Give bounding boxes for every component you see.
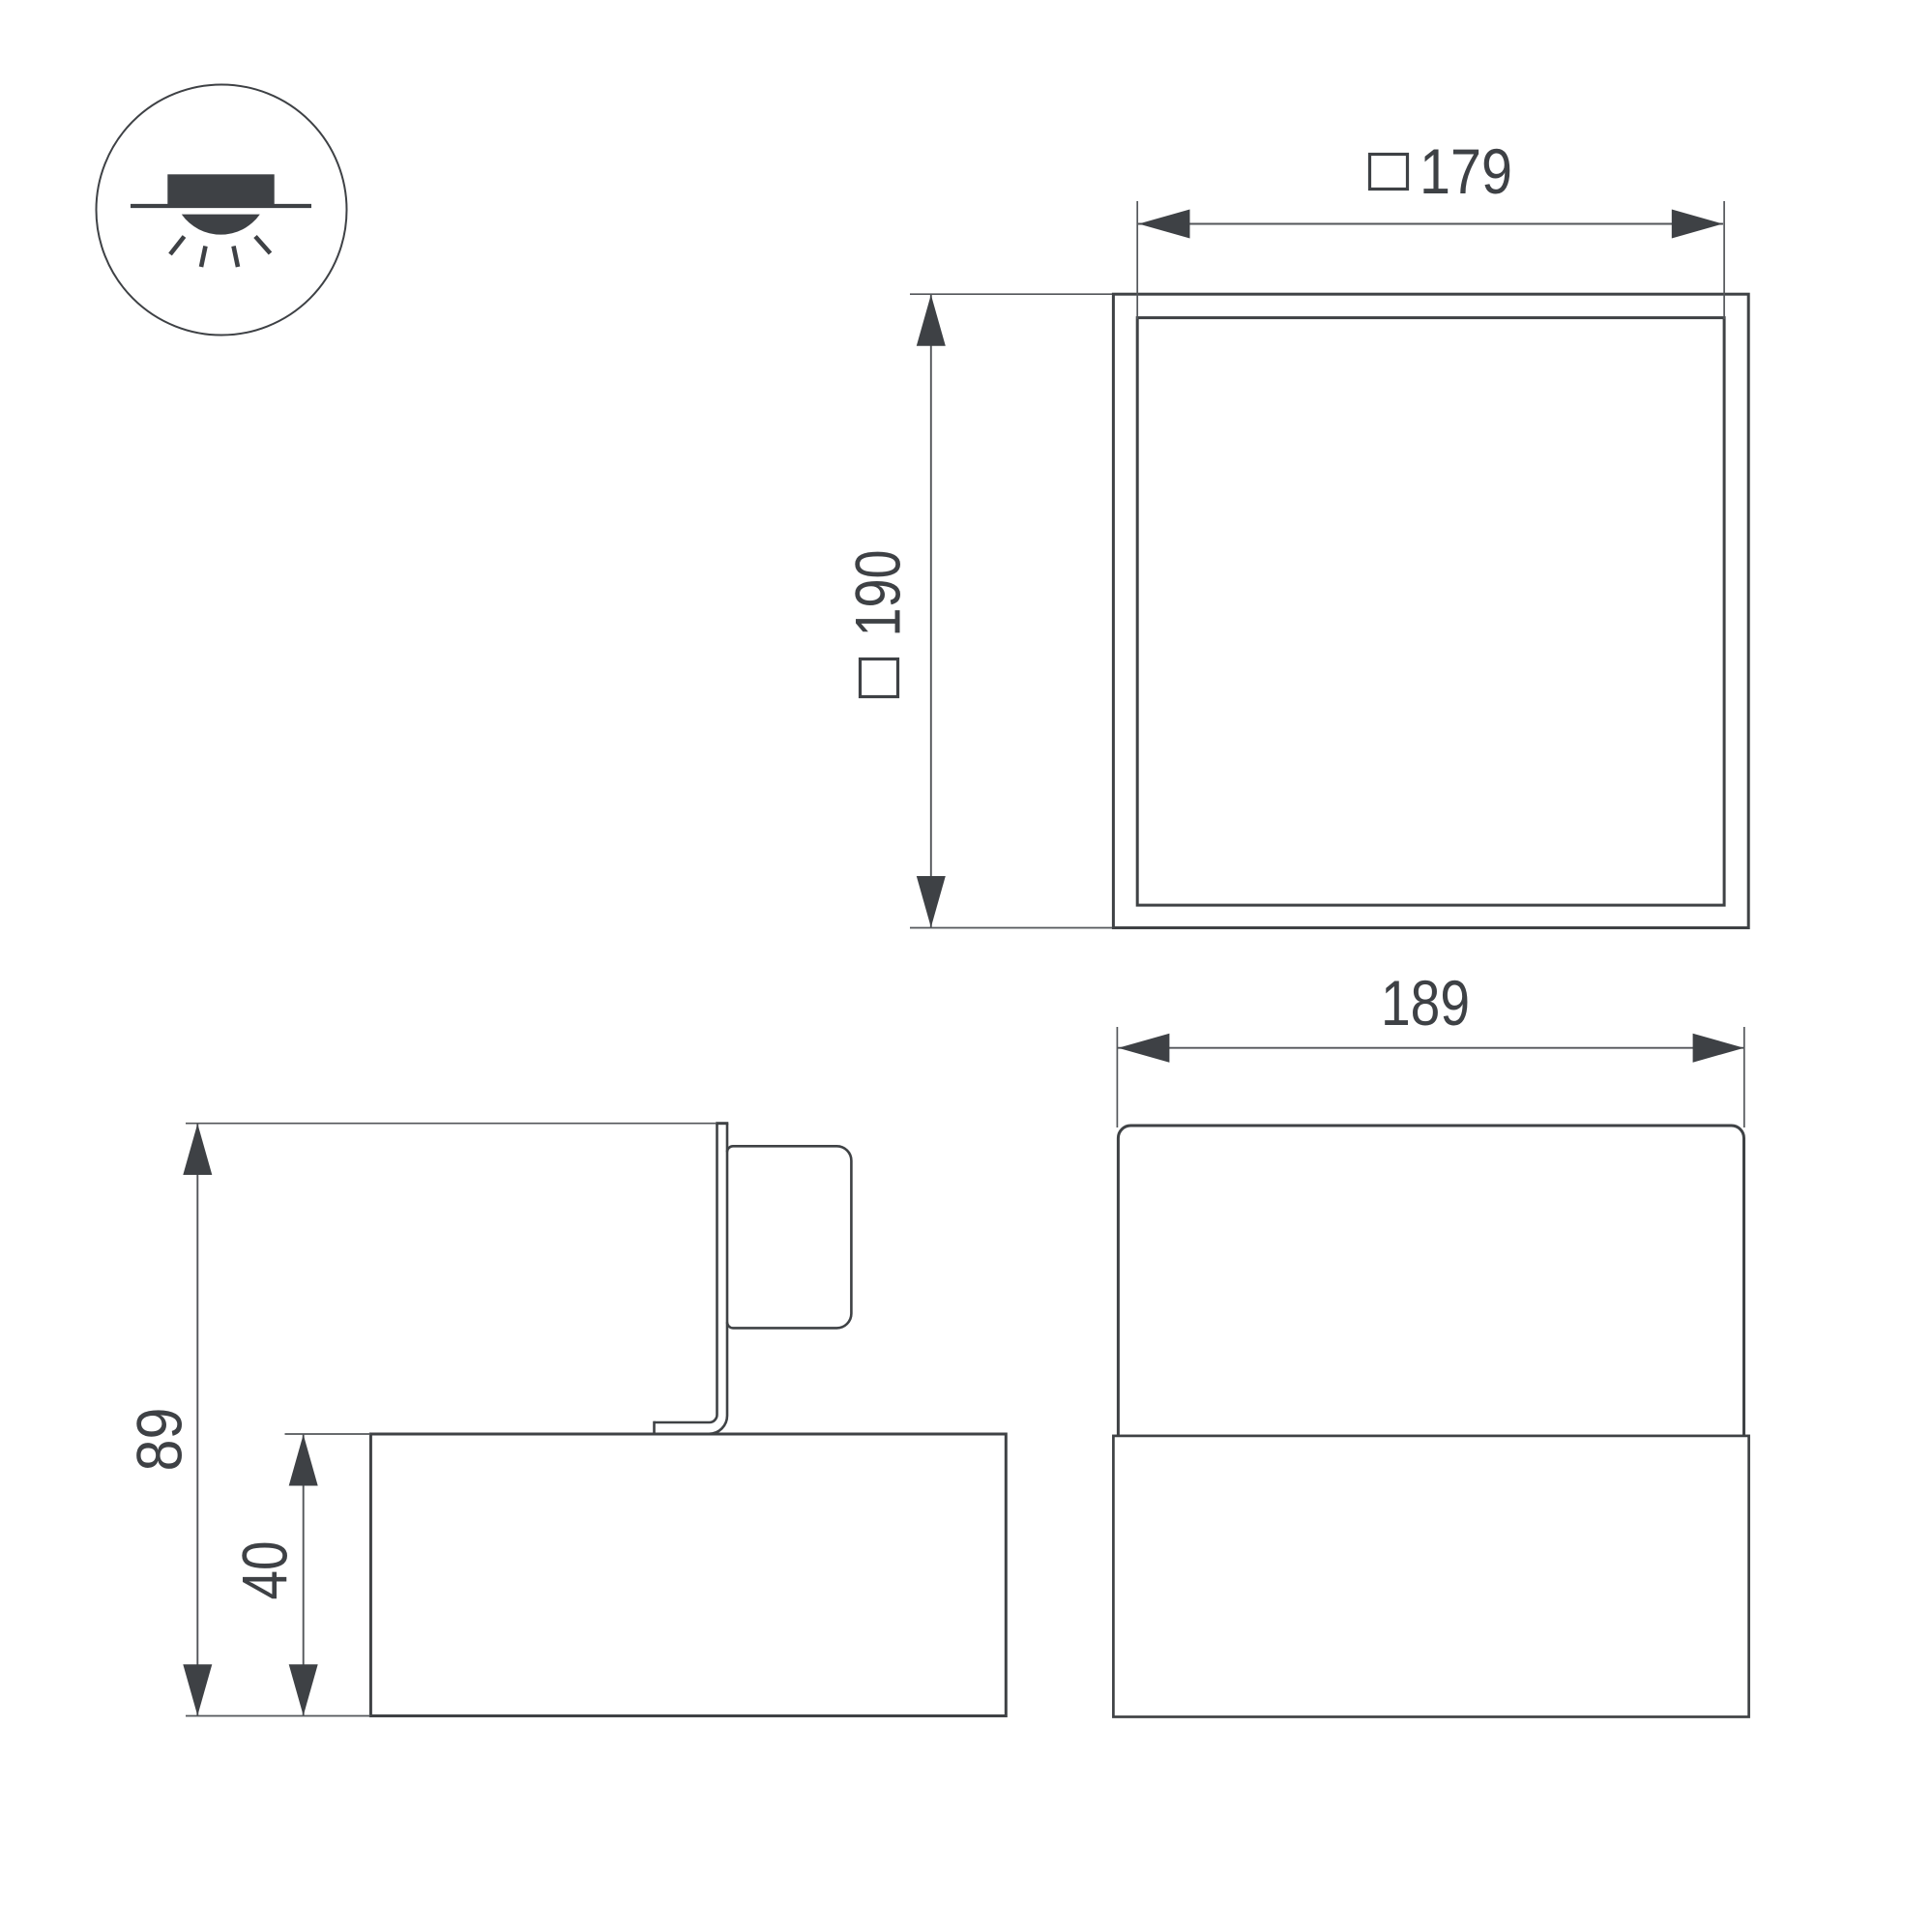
svg-text:89: 89 [124,1408,195,1472]
svg-text:40: 40 [229,1541,301,1600]
svg-text:189: 189 [1381,967,1470,1039]
svg-text:179: 179 [1420,135,1512,207]
svg-text:190: 190 [842,550,914,637]
